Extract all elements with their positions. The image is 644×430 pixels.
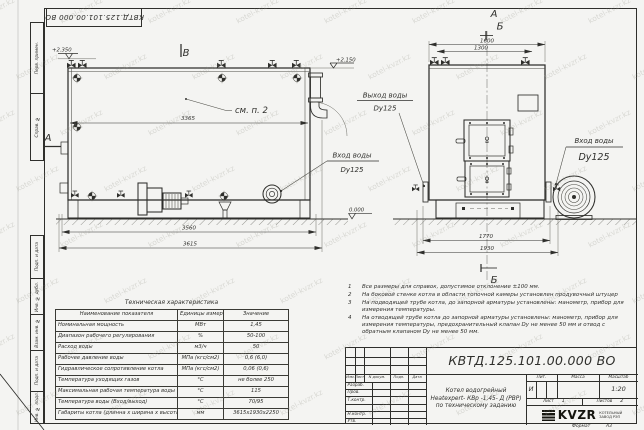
margin-label: Справ. № [35,116,40,137]
elevation-marks: +2.350 +2.150 0.000 [52,48,372,219]
note-number: 1 [348,284,362,291]
tb-header-col: Изм. [346,374,355,382]
note-item: 4На отводящей трубе котла до запорной ар… [348,315,626,336]
tech-table-row: Температура воды (Вход/выход)°С70/95 [56,397,289,408]
tech-table-cell: °С [178,397,224,408]
tb-row-label: Пров. [346,389,374,396]
survey-mark-icon [72,73,82,83]
flue-outlet-elbow [309,73,348,136]
tech-table-cell: Температура уходящих газов [56,375,178,386]
product-line: Котел водогрейный [446,389,507,395]
dimension-label: 3560 [182,226,196,232]
blower-fan [553,176,595,220]
tech-table-cell: 50 [224,342,289,353]
scale-value: 1:20 [599,381,638,398]
margin-label: Подп. и дата [35,356,40,385]
product-line: по техническому заданию [436,404,517,410]
format-label: Формат А3 [572,424,612,429]
tech-table-row: Расход водым3/ч50 [56,342,289,353]
survey-mark-icon [292,73,302,83]
survey-mark-icon [217,73,227,83]
company-name-line: ЗАВОД РЭП [599,415,622,419]
sheets-label: Листов [597,399,613,403]
notes-list: 1Все размеры для справок, допустимое отк… [348,284,626,337]
tb-header-col: Подп. [390,374,408,382]
sheet-label: Лист [543,399,554,403]
sheet-value: 1 [562,399,565,404]
note-number: 3 [348,300,362,314]
company-cell: KVZR КОТЕЛЬНЫЙ ЗАВОД РЭП [526,405,638,425]
tech-table-cell: 70/95 [224,397,289,408]
inspection-window [518,95,538,111]
document-number: КВТД.125.101.00.000 ВО [426,348,638,374]
elevation-label: 0.000 [349,208,365,214]
company-name: КОТЕЛЬНЫЙ ЗАВОД РЭП [599,411,622,419]
tb-header-col: Лист [355,374,364,382]
valve-icon [292,60,301,67]
section-label-a: А [490,9,498,20]
tech-header: Наименование показателя [56,310,178,321]
margin-label: Перв. примен. [35,42,40,74]
valve-icon [412,185,419,191]
tb-row-label: Н.контр. [346,411,374,418]
note-item: 2На боковой стенке котла в области топоч… [348,292,626,299]
margin-label: Инв. № дубл. [35,282,40,312]
tech-table-cell: МПа (кгс/см2) [178,353,224,364]
format-value: А3 [606,424,612,429]
inlet-flange [546,182,551,202]
note-text: На подводящей трубе котла, до запорной а… [362,300,626,314]
scale-header: Масштаб [599,374,638,381]
tech-table-row: Габариты котла (длинна х ширина х высота… [56,408,289,419]
tech-table-cell: % [178,331,224,342]
margin-label: Подп. и дата [35,242,40,271]
margin-label: Взам. инв. № [35,318,40,348]
tech-table-cell: Максимальная рабочая температура воды [56,386,178,397]
tech-table-row: Номинальная мощностьМВт1,45 [56,320,289,331]
side-view-boiler [60,60,347,218]
valve-icon [441,58,450,65]
valve-icon [67,60,76,67]
valve-icon [78,60,87,67]
note-text: Все размеры для справок, допустимое откл… [362,284,626,291]
tech-table-cell: Температура воды (Вход/выход) [56,397,178,408]
water-outlet-label: Выход воды [363,92,408,100]
tech-table-row: Гидравлическое сопротивление котлаМПа (к… [56,364,289,375]
section-label-b: Б [497,22,504,33]
tech-table-cell: Гидравлическое сопротивление котла [56,364,178,375]
tech-table-cell: м3/ч [178,342,224,353]
tech-table-cell: Расход воды [56,342,178,353]
margin-column-bottom: Подп. и дата Инв. № дубл. Взам. инв. № П… [30,235,44,424]
tech-table-cell: 50-100 [224,331,289,342]
tech-table-cell: Номинальная мощность [56,320,178,331]
tb-row-label: Разраб. [346,382,374,390]
margin-column-top: Перв. примен. Справ. № [30,22,44,161]
water-inlet-side-label: Вход воды [332,152,372,160]
tech-characteristics: Техническая характеристика Наименование … [55,299,288,420]
tech-table-cell: °С [178,375,224,386]
tech-table-cell: не более 250 [224,375,289,386]
drain-funnel [219,202,231,210]
note-number: 2 [348,292,362,299]
survey-mark-icon [72,122,82,132]
water-inlet-side-dn: Dy125 [341,166,364,174]
product-line: Heatexpert- КВр -1,45- Д (РВР) [431,397,522,403]
valve-icon [217,60,226,67]
section-labels: В А А Б Б [44,9,504,286]
lit-header: Лит. [526,374,557,381]
sheet-cell: Лист 1 [526,398,582,405]
lit-value: И [526,381,536,398]
lower-door [457,161,511,197]
elevation-label: +2.350 [52,48,72,54]
tb-row-label: Утв. [346,418,374,425]
note-text: На боковой стенке котла в области топочн… [362,292,626,299]
company-logo-icon [542,410,555,421]
tech-table-row: Диапазон рабочего регулирования%50-100 [56,331,289,342]
note-item: 1Все размеры для справок, допустимое отк… [348,284,626,291]
tb-header-col: N докум. [364,374,390,382]
dimension-label: 1600 [480,38,494,44]
water-inlet-front-label: Вход воды [574,137,614,145]
tech-table-cell: Рабочее давление воды [56,353,178,364]
valve-icon [117,191,125,198]
top-stamp-number: КВТД.125.101.00.000 ВО [45,13,144,22]
tech-table-cell: 1,45 [224,320,289,331]
elevation-label: +2.150 [336,58,356,64]
tech-table-cell: Диапазон рабочего регулирования [56,331,178,342]
tech-table-title: Техническая характеристика [55,299,288,306]
tech-table-cell: 0,06 (0,6) [224,364,289,375]
sheets-cell: Листов 2 [582,398,638,405]
mass-header: Масса [557,374,599,381]
dimension-label: 1930 [480,246,494,252]
dimension-label: 3615 [183,242,197,248]
tech-table: Наименование показателя Единицы измерени… [55,309,289,420]
water-outlet-dn: Dy125 [374,105,397,113]
tb-row-label: Т.контр. [346,396,374,404]
tech-header: Значение [224,310,289,321]
burner-assembly [138,183,188,215]
front-view-boiler [412,31,595,282]
valve-icon [268,60,277,67]
dimension-label: 1770 [479,234,493,240]
company-logo-text: KVZR [558,409,597,421]
see-item-note: см. п. 2 [235,106,268,116]
top-stamp: КВТД.125.101.00.000 ВО [46,8,142,27]
tech-table-row: Температура уходящих газов°Сне более 250 [56,375,289,386]
valve-icon [185,191,193,198]
valve-icon [430,58,439,65]
tech-header: Единицы измерения [178,310,224,321]
note-number: 4 [348,315,362,336]
valve-icon [521,58,530,65]
view-label-a: А [44,133,52,144]
tech-table-cell: МВт [178,320,224,331]
dimension-label: 3365 [181,116,195,122]
tech-table-cell: Габариты котла (длинна х ширина х высота… [56,408,178,419]
tech-table-row: Максимальная рабочая температура воды°С1… [56,386,289,397]
ground-line [56,219,636,225]
tech-table-cell: МПа (кгс/см2) [178,364,224,375]
view-label-b: В [183,48,190,59]
tech-table-cell: 115 [224,386,289,397]
dimension-label: 1300 [474,46,488,52]
callouts: Выход воды Dy125 Вход воды Dy125 Вход во… [185,92,623,193]
valve-icon [71,191,79,198]
tech-table-cell: 3615х1930х2250 [224,408,289,419]
tech-table-row: Рабочее давление водыМПа (кгс/см2)0,6 (6… [56,353,289,364]
note-text: На отводящей трубе котла до запорной арм… [362,315,626,336]
margin-label: Инв. № подл. [35,392,40,422]
tech-table-body: Номинальная мощностьМВт1,45Диапазон рабо… [56,320,289,419]
sheets-value: 2 [620,399,623,404]
tb-header-col: Дата [408,374,426,382]
format-caption: Формат [572,424,590,429]
note-item: 3На подводящей трубе котла, до запорной … [348,300,626,314]
tech-table-cell: 0,6 (6,0) [224,353,289,364]
tech-table-cell: мм [178,408,224,419]
blueprint-page: 3365 3560 3615 1600 1300 1770 1930 [0,0,644,430]
product-name: Котел водогрейный Heatexpert- КВр -1,45-… [426,374,526,425]
upper-door [456,120,513,161]
title-block: КВТД.125.101.00.000 ВО Изм. Лист N докум… [345,347,637,424]
tech-table-cell: °С [178,386,224,397]
water-inlet-front-dn: Dy125 [578,152,609,163]
